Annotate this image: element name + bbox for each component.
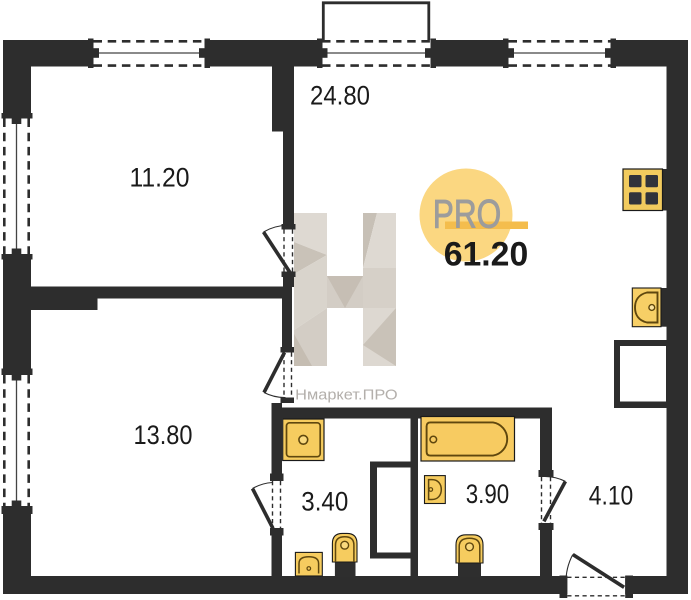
- svg-text:24.80: 24.80: [310, 80, 370, 110]
- svg-text:11.20: 11.20: [130, 163, 190, 193]
- svg-text:13.80: 13.80: [134, 420, 193, 450]
- svg-text:3.90: 3.90: [466, 479, 510, 509]
- svg-text:PRO: PRO: [433, 193, 502, 237]
- svg-text:Нмаркет.ПРО: Нмаркет.ПРО: [295, 387, 398, 404]
- svg-text:61.20: 61.20: [444, 236, 529, 274]
- svg-text:3.40: 3.40: [301, 487, 348, 517]
- svg-text:4.10: 4.10: [589, 481, 634, 511]
